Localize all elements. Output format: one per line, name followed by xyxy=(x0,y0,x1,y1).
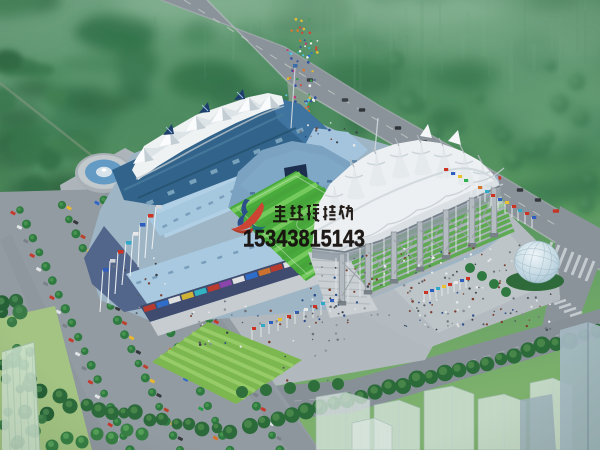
svg-text:15343815143: 15343815143 xyxy=(243,226,365,253)
